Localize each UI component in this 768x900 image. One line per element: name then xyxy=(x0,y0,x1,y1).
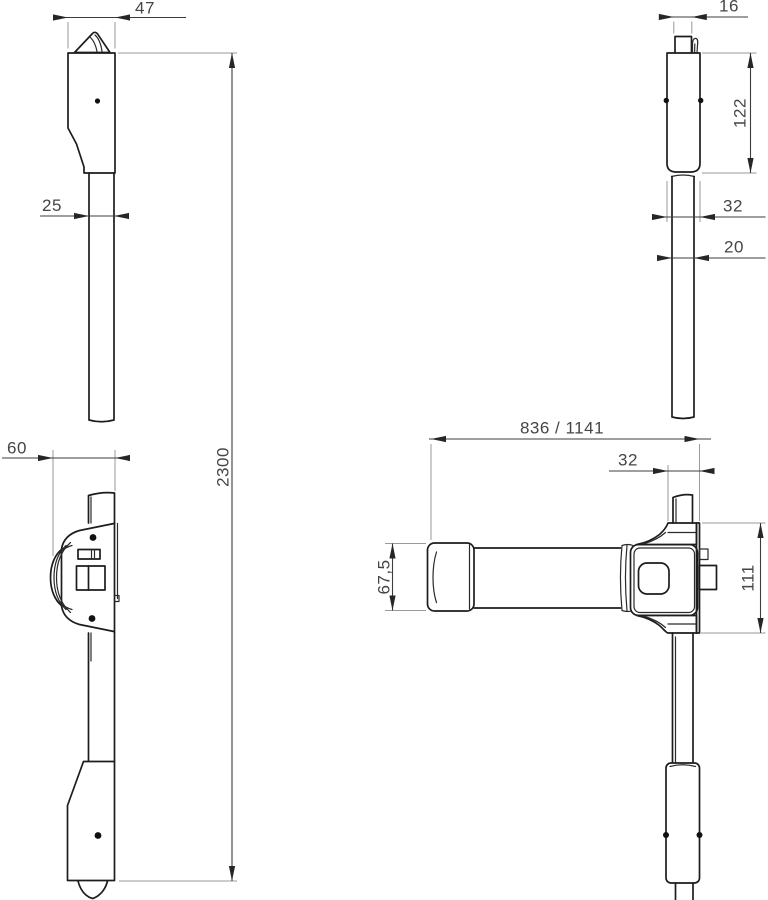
guide-rod xyxy=(672,177,694,419)
latch-bolt-front xyxy=(700,566,717,590)
push-bar xyxy=(474,548,621,608)
case-block xyxy=(77,566,106,590)
latch-tip xyxy=(75,32,111,52)
dim-rod-offset: 32 xyxy=(609,451,715,522)
dim-label-head-width: 47 xyxy=(135,0,155,18)
dim-guide-height: 122 xyxy=(702,53,757,173)
rod-shoulder xyxy=(672,175,695,177)
lower-rod-side xyxy=(89,633,115,762)
cylinder-cutout xyxy=(639,563,670,594)
bottom-screw-hole xyxy=(95,832,102,839)
guide-pin-right xyxy=(698,98,703,103)
technical-drawing-page: 47 25 2300 16 122 xyxy=(0,0,768,900)
dim-label-case-height: 111 xyxy=(739,564,758,591)
dim-tab-width: 16 xyxy=(659,0,748,34)
dim-label-tab-width: 16 xyxy=(719,0,739,16)
dim-label-overall-height: 2300 xyxy=(214,447,233,487)
view-top-guide-edge xyxy=(664,37,704,419)
case-screw-bottom xyxy=(89,615,96,622)
bottom-latch-body xyxy=(68,762,115,881)
dim-label-rod-width-front: 25 xyxy=(42,196,62,215)
view-top-latch-front xyxy=(68,32,115,421)
dim-label-rod-offset: 32 xyxy=(618,451,638,470)
latch-head-body xyxy=(68,53,115,173)
dim-label-guide-width: 32 xyxy=(723,197,743,216)
top-rod-bracket xyxy=(637,523,697,545)
dim-bar-end-height: 67,5 xyxy=(375,544,427,611)
dim-label-rod-width-side: 20 xyxy=(724,238,744,257)
dim-rod-width-front: 25 xyxy=(40,196,129,219)
guide-top-tab xyxy=(675,37,692,54)
dim-overall-height: 2300 xyxy=(118,53,237,881)
lower-guide-pin-right xyxy=(697,832,703,838)
lower-guide-body xyxy=(666,763,700,883)
case-screw-top xyxy=(90,534,97,541)
bottom-bolt xyxy=(78,881,108,899)
latch-hook xyxy=(693,38,698,53)
auxiliary-tab xyxy=(700,549,709,560)
screw-hole xyxy=(95,98,100,103)
guide-body xyxy=(667,53,700,172)
view-panic-bar-front xyxy=(428,495,717,900)
tail-rod xyxy=(676,883,694,900)
dim-label-bar-projection: 60 xyxy=(7,439,27,458)
dim-label-bar-end-height: 67,5 xyxy=(375,559,394,594)
dim-bar-length: 836 / 1141 xyxy=(429,419,711,541)
guide-pin-left xyxy=(664,98,669,103)
dim-rod-width-side: 20 xyxy=(657,238,766,262)
dogging-window xyxy=(78,550,100,560)
lower-guide-pin-left xyxy=(663,832,669,838)
view-mechanism-side xyxy=(51,493,120,899)
dim-label-bar-length: 836 / 1141 xyxy=(520,419,604,438)
dim-head-width: 47 xyxy=(53,0,186,49)
latch-rod xyxy=(89,173,114,422)
dim-guide-width: 32 xyxy=(652,181,766,222)
panic-exit-device-drawing: 47 25 2300 16 122 xyxy=(0,0,768,900)
upper-rod-side xyxy=(89,493,115,523)
bar-end-cap xyxy=(428,543,475,611)
dim-label-guide-height: 122 xyxy=(731,98,750,128)
